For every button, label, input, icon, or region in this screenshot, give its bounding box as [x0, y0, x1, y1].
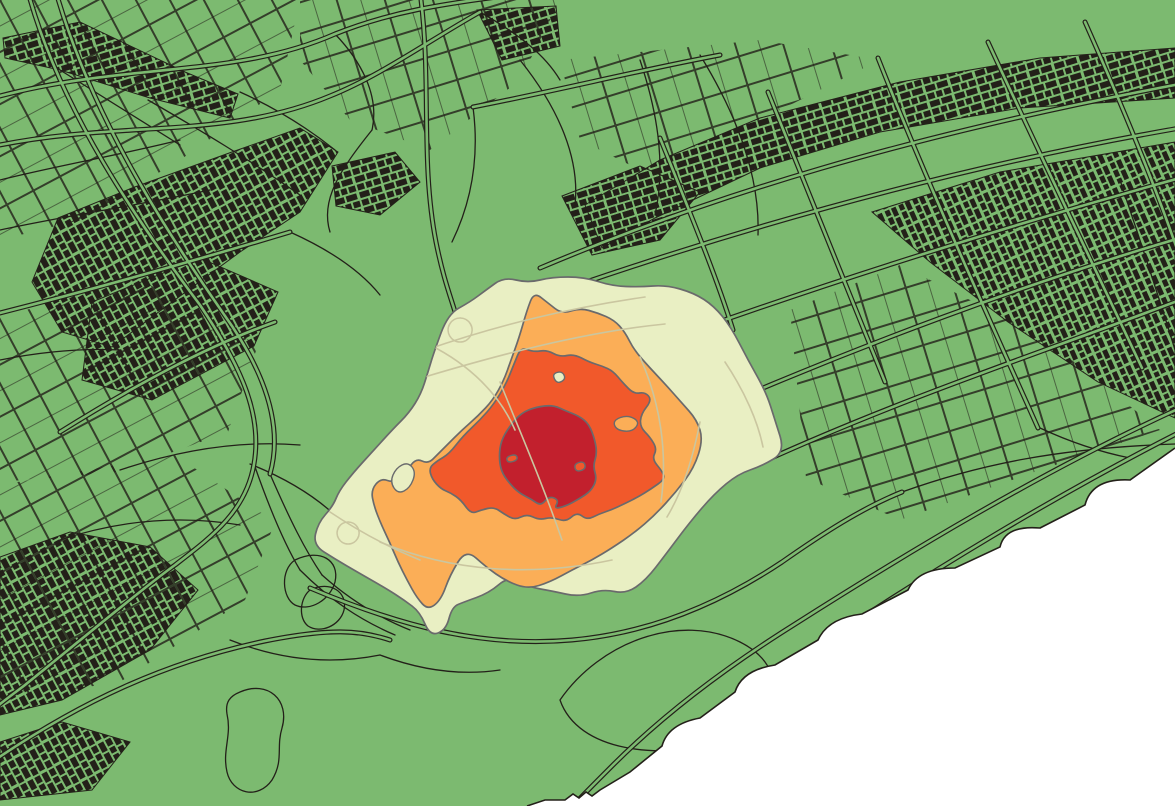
contour-pale-islet-in-level3	[554, 372, 565, 382]
city-map-svg	[0, 0, 1175, 806]
map-canvas	[0, 0, 1175, 806]
contour-hole-in-core-west	[507, 455, 517, 462]
contour-level2-notch-in-level3	[614, 416, 637, 431]
contour-hole-in-core-east	[575, 462, 585, 471]
